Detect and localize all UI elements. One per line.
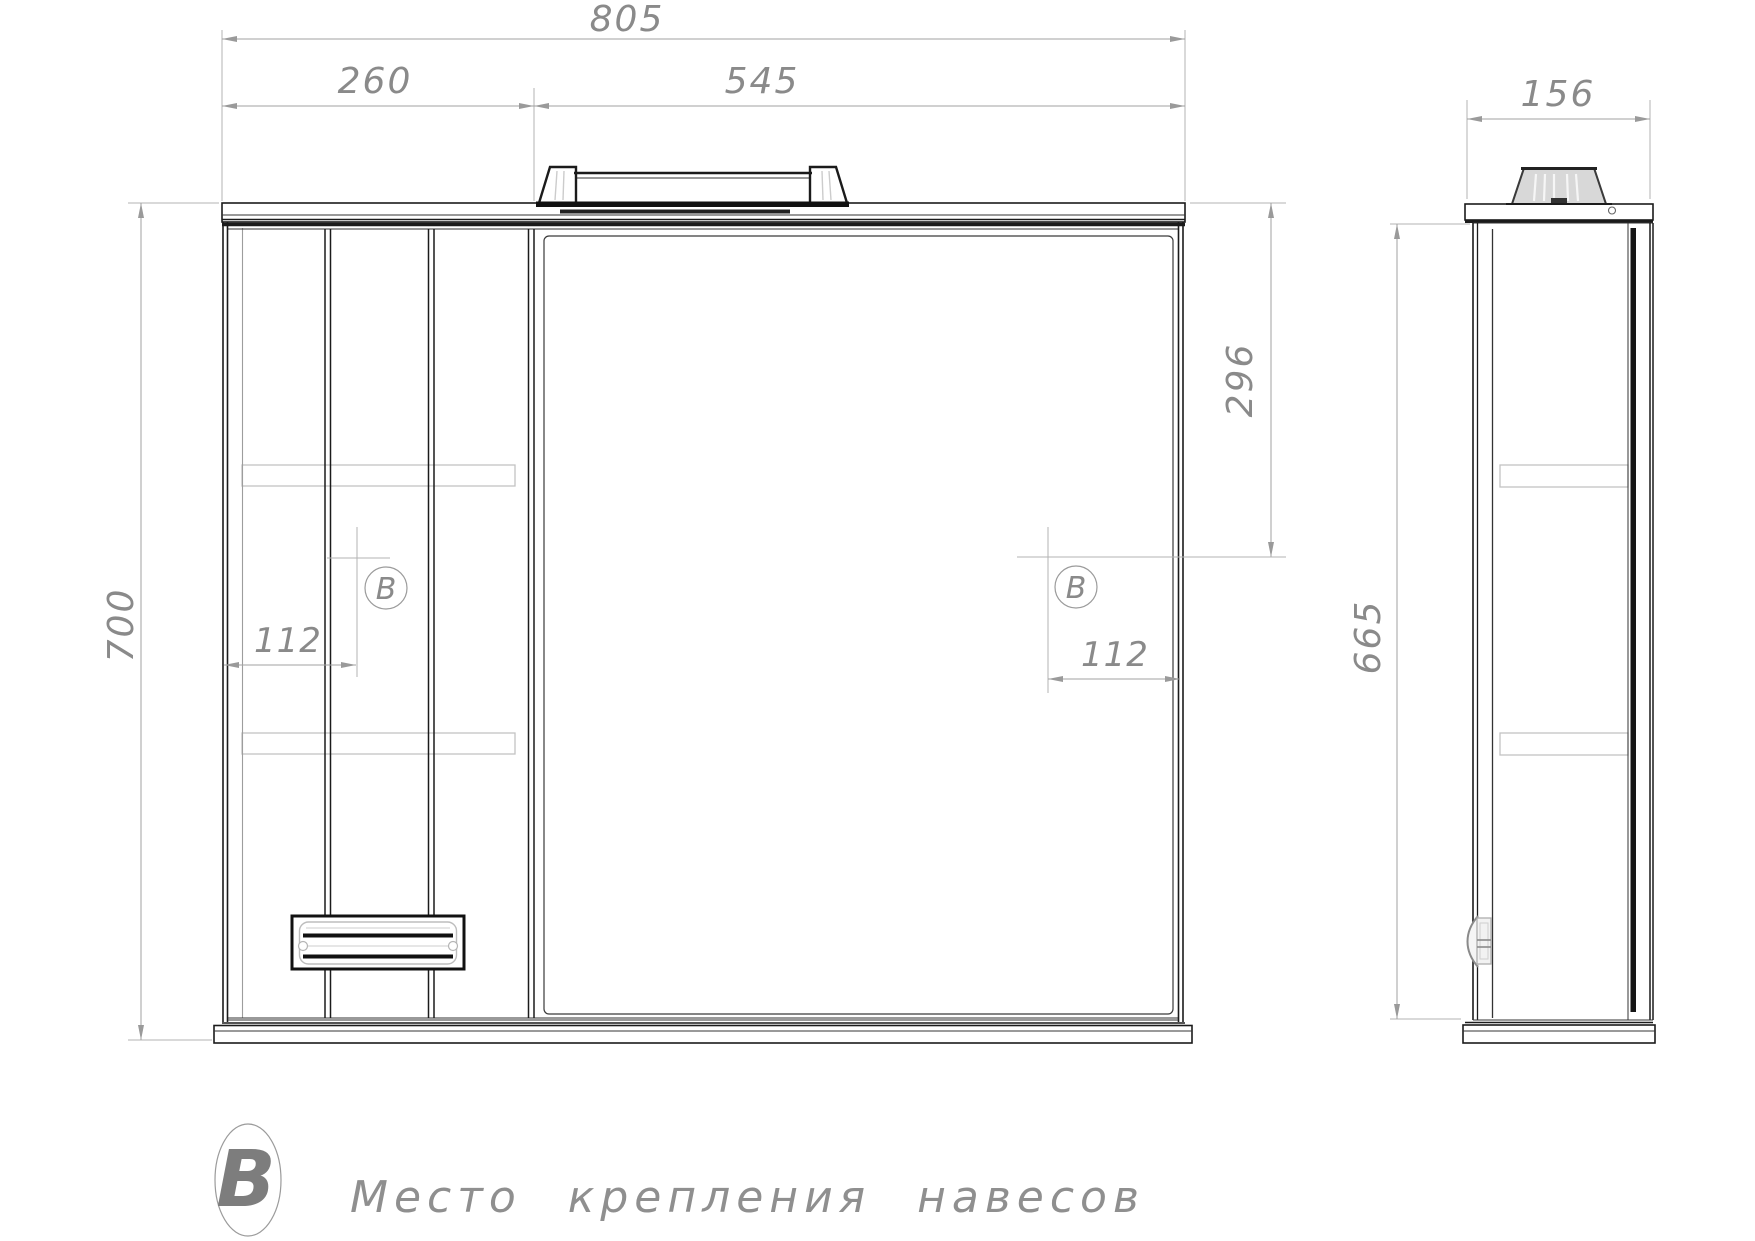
side-mirror-edge xyxy=(1631,228,1637,1012)
dim-label-260: 260 xyxy=(338,61,413,102)
hinge-marker-left-letter: В xyxy=(376,572,397,607)
hinge-marker-right-letter: В xyxy=(1066,571,1087,606)
front-view: 805 260 545 700 296 В 112 xyxy=(101,0,1286,1043)
legend: В Место крепления навесов xyxy=(215,1124,1145,1236)
cabinet-body xyxy=(223,222,1183,1022)
bottom-plinth xyxy=(214,1020,1192,1043)
mirror-glass xyxy=(544,236,1173,1014)
towel-bar xyxy=(292,916,464,969)
side-shelf-top xyxy=(1500,465,1628,487)
side-extension-lines xyxy=(1390,100,1650,1019)
side-door-handle xyxy=(1468,916,1492,967)
dim-label-156: 156 xyxy=(1521,74,1596,115)
dim-label-112-left: 112 xyxy=(254,621,322,661)
side-lamp xyxy=(1506,168,1612,204)
legend-marker-letter: В xyxy=(216,1135,275,1225)
side-top-board xyxy=(1465,204,1653,222)
side-board-screw xyxy=(1609,207,1616,214)
dim-label-545: 545 xyxy=(725,61,800,102)
drawing-sheet: 805 260 545 700 296 В 112 xyxy=(0,0,1755,1241)
side-shelf-bottom xyxy=(1500,733,1628,755)
legend-label: Место крепления навесов xyxy=(350,1172,1145,1223)
towel-bar-right-cap xyxy=(449,942,458,951)
side-view: 156 665 xyxy=(1348,74,1655,1043)
dim-label-805: 805 xyxy=(590,0,665,40)
dim-label-665: 665 xyxy=(1348,600,1389,675)
dim-label-700: 700 xyxy=(101,588,142,663)
side-dimensions: 156 665 xyxy=(1348,74,1650,1019)
hinge-marker-left: В 112 xyxy=(224,527,407,677)
towel-bar-left-cap xyxy=(299,942,308,951)
shelf-top xyxy=(242,465,515,486)
mirror-door xyxy=(529,229,1174,1018)
shelf-bottom xyxy=(242,733,515,754)
left-door-gaps xyxy=(325,229,434,1018)
light-fixture xyxy=(536,167,849,214)
side-body xyxy=(1468,223,1654,1020)
fixture-shadow-strip xyxy=(560,210,790,214)
side-plinth xyxy=(1463,1023,1655,1044)
dim-label-296: 296 xyxy=(1220,343,1261,418)
fixture-base-strip xyxy=(536,202,849,208)
dim-label-112-right: 112 xyxy=(1081,635,1149,675)
